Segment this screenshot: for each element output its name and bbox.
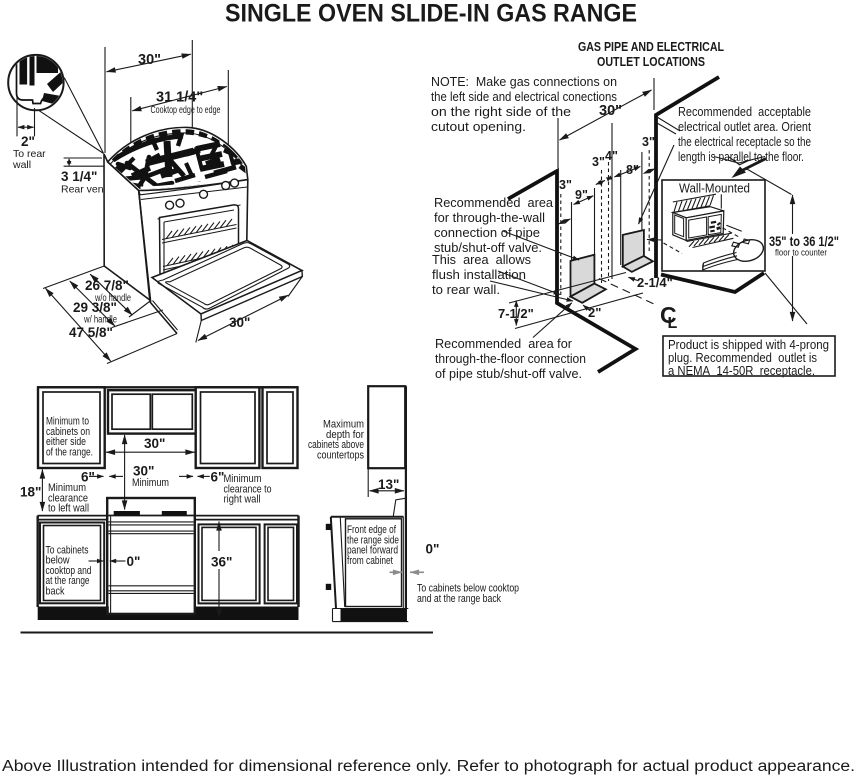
svg-text:electrical outlet area. Orient: electrical outlet area. Orient [678, 120, 811, 134]
svg-text:Product is shipped with 4-pron: Product is shipped with 4-prong [668, 338, 829, 352]
svg-text:36": 36" [211, 555, 232, 570]
svg-text:a NEMA 14-50R receptacle.: a NEMA 14-50R receptacle. [668, 364, 815, 378]
svg-text:30": 30" [138, 52, 161, 68]
svg-text:9": 9" [575, 188, 588, 202]
svg-text:of pipe stub/shut-off valve.: of pipe stub/shut-off valve. [435, 367, 582, 381]
svg-text:L: L [668, 315, 678, 332]
svg-text:back: back [46, 585, 65, 597]
svg-text:cutout opening.: cutout opening. [431, 120, 526, 134]
svg-text:and at the range back: and at the range back [417, 593, 501, 605]
svg-text:2": 2" [21, 134, 35, 149]
svg-text:3": 3" [642, 135, 655, 149]
svg-text:Recommended area: Recommended area [434, 196, 553, 210]
svg-text:GAS PIPE AND ELECTRICAL: GAS PIPE AND ELECTRICAL [578, 40, 724, 54]
svg-text:30": 30" [229, 315, 250, 330]
svg-text:NOTE: Make gas connections on: NOTE: Make gas connections on [431, 75, 617, 89]
svg-text:on the right side of the: on the right side of the [431, 105, 571, 119]
svg-text:26 7/8": 26 7/8" [85, 278, 129, 293]
svg-text:connection of pipe: connection of pipe [434, 226, 540, 240]
svg-text:3": 3" [559, 178, 572, 192]
svg-text:This area allows: This area allows [432, 253, 531, 267]
svg-text:Above Illustration intended fo: Above Illustration intended for dimensio… [2, 758, 855, 775]
svg-text:the left side and electrical c: the left side and electrical conections [431, 90, 617, 104]
svg-text:0": 0" [426, 542, 440, 557]
svg-text:Cooktop edge to edge: Cooktop edge to edge [151, 104, 221, 116]
svg-text:8": 8" [626, 163, 639, 177]
svg-text:right wall: right wall [224, 494, 261, 506]
svg-text:from cabinet: from cabinet [347, 555, 393, 567]
svg-text:2": 2" [588, 305, 601, 320]
svg-text:length is parallel to the floo: length is parallel to the floor. [678, 150, 804, 164]
svg-text:2-1/4": 2-1/4" [637, 275, 673, 290]
svg-text:30": 30" [599, 103, 622, 119]
svg-text:Recommended area for: Recommended area for [435, 337, 572, 351]
svg-text:Rear vent: Rear vent [61, 184, 107, 196]
svg-text:4": 4" [605, 149, 618, 163]
svg-text:Minimum: Minimum [132, 477, 169, 489]
svg-text:to rear wall.: to rear wall. [432, 283, 500, 297]
svg-text:plug. Recommended outlet is: plug. Recommended outlet is [668, 351, 817, 365]
svg-text:wall: wall [12, 159, 31, 171]
svg-text:0": 0" [127, 554, 141, 569]
svg-text:13": 13" [378, 477, 399, 492]
svg-text:29 3/8": 29 3/8" [73, 300, 117, 315]
svg-text:of the range.: of the range. [46, 446, 93, 458]
svg-text:47 5/8": 47 5/8" [69, 325, 113, 340]
svg-text:to left wall: to left wall [48, 503, 89, 515]
svg-text:OUTLET LOCATIONS: OUTLET LOCATIONS [597, 55, 705, 69]
svg-text:floor to counter: floor to counter [775, 248, 827, 258]
svg-text:30": 30" [144, 436, 165, 451]
svg-text:flush installation: flush installation [432, 268, 526, 282]
svg-text:w/ handle: w/ handle [83, 315, 117, 326]
svg-text:countertops: countertops [317, 449, 364, 461]
svg-text:6": 6" [211, 470, 225, 485]
svg-text:3 1/4": 3 1/4" [61, 169, 97, 184]
svg-text:18": 18" [20, 485, 41, 500]
svg-text:through-the-floor connection: through-the-floor connection [435, 352, 586, 366]
svg-text:SINGLE OVEN SLIDE-IN GAS RANGE: SINGLE OVEN SLIDE-IN GAS RANGE [225, 0, 637, 28]
svg-text:for through-the-wall: for through-the-wall [434, 211, 545, 225]
svg-text:the electrical receptacle so t: the electrical receptacle so the [678, 135, 811, 149]
svg-text:3": 3" [592, 155, 605, 169]
svg-text:Recommended acceptable: Recommended acceptable [678, 105, 811, 119]
svg-text:7-1/2": 7-1/2" [498, 306, 534, 321]
svg-text:Wall-Mounted: Wall-Mounted [679, 182, 750, 196]
